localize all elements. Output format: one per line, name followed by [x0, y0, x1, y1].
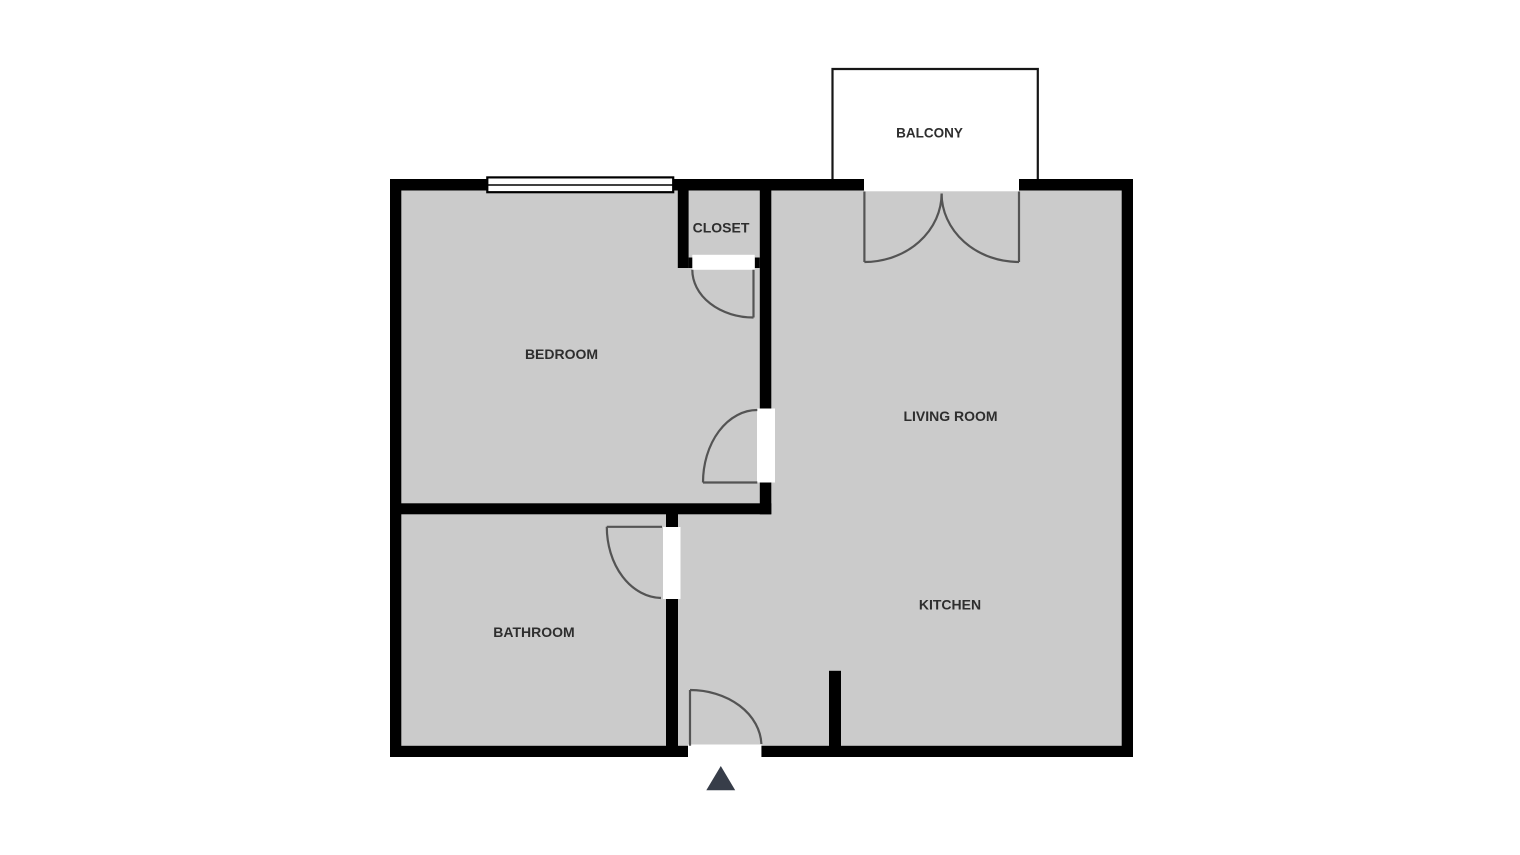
svg-text:BALCONY: BALCONY [896, 126, 963, 141]
svg-text:KITCHEN: KITCHEN [919, 597, 981, 613]
svg-text:CLOSET: CLOSET [693, 220, 750, 236]
svg-text:LIVING ROOM: LIVING ROOM [903, 408, 997, 424]
svg-text:BATHROOM: BATHROOM [493, 624, 574, 640]
svg-text:BEDROOM: BEDROOM [525, 346, 598, 362]
